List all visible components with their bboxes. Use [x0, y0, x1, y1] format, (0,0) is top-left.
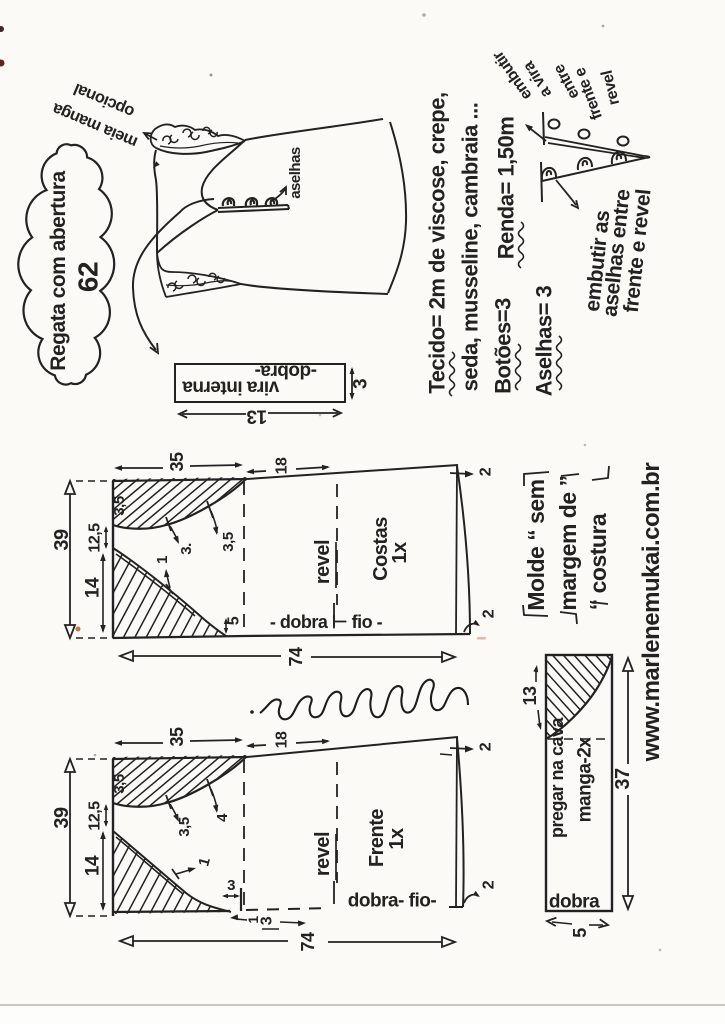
svg-text:3.: 3.	[178, 543, 195, 555]
svg-text:3,5: 3,5	[220, 532, 237, 552]
svg-text:13: 13	[520, 686, 540, 706]
svg-text:vira interna: vira interna	[182, 377, 279, 398]
svg-text:12,5: 12,5	[86, 801, 103, 831]
svg-text:1x: 1x	[386, 828, 408, 850]
svg-text:3: 3	[227, 877, 235, 894]
svg-text:74: 74	[298, 932, 318, 952]
svg-text:74: 74	[286, 647, 306, 667]
svg-text:Botões=3: Botões=3	[490, 298, 515, 394]
svg-text:www.marlenemukai.com.br: www.marlenemukai.com.br	[638, 463, 665, 763]
svg-text:18: 18	[273, 731, 290, 748]
svg-text:1x: 1x	[389, 542, 411, 564]
svg-text:2: 2	[477, 742, 494, 751]
svg-text:5: 5	[570, 928, 590, 938]
svg-text:4: 4	[214, 813, 231, 822]
svg-text:14: 14	[82, 855, 103, 876]
svg-text:“ costura: “ costura	[585, 513, 611, 610]
svg-text:3,5: 3,5	[176, 817, 193, 837]
svg-text:Aselhas= 3: Aselhas= 3	[531, 285, 556, 396]
svg-text:revel: revel	[312, 832, 334, 876]
svg-text:35: 35	[167, 452, 187, 472]
svg-text:39: 39	[51, 529, 73, 551]
svg-text:35: 35	[167, 727, 187, 747]
svg-text:2: 2	[477, 467, 494, 476]
svg-text:Frente: Frente	[366, 809, 388, 868]
svg-text:pregar na cava: pregar na cava	[547, 716, 567, 838]
svg-text:Renda= 1,50m: Renda= 1,50m	[493, 117, 518, 260]
svg-text:3: 3	[350, 379, 371, 389]
svg-text:2: 2	[480, 880, 497, 889]
svg-text:aselhas: aselhas	[287, 147, 304, 199]
svg-text:3,5: 3,5	[111, 496, 128, 516]
svg-text:5: 5	[225, 616, 242, 625]
svg-text:62: 62	[73, 262, 104, 292]
svg-text:3,5: 3,5	[111, 774, 128, 794]
svg-text:12,5: 12,5	[86, 523, 103, 553]
svg-text:- dobra ⊢ fio -: - dobra ⊢ fio -	[270, 612, 383, 632]
svg-text:3: 3	[258, 916, 275, 925]
svg-text:margem de ”: margem de ”	[555, 475, 581, 610]
svg-text:37: 37	[612, 768, 634, 790]
svg-text:dobra: dobra	[549, 891, 600, 912]
svg-text:Regata com abertura: Regata com abertura	[47, 170, 70, 370]
svg-text:18: 18	[273, 457, 290, 474]
svg-text:dobra- fio-: dobra- fio-	[348, 890, 437, 911]
svg-text:manga-2x: manga-2x	[574, 737, 595, 823]
svg-text:14: 14	[82, 577, 103, 598]
svg-text:seda, musseline, cambraia ...: seda, musseline, cambraia ...	[457, 103, 482, 392]
svg-text:revel: revel	[312, 540, 334, 584]
svg-text:13: 13	[247, 406, 267, 427]
svg-text:Tecido= 2m de viscose, crepe,: Tecido= 2m de viscose, crepe,	[424, 92, 449, 393]
svg-text:39: 39	[51, 807, 73, 829]
svg-text:Molde “ sem: Molde “ sem	[523, 479, 549, 610]
svg-text:1: 1	[154, 556, 171, 564]
svg-text:2: 2	[480, 609, 497, 618]
